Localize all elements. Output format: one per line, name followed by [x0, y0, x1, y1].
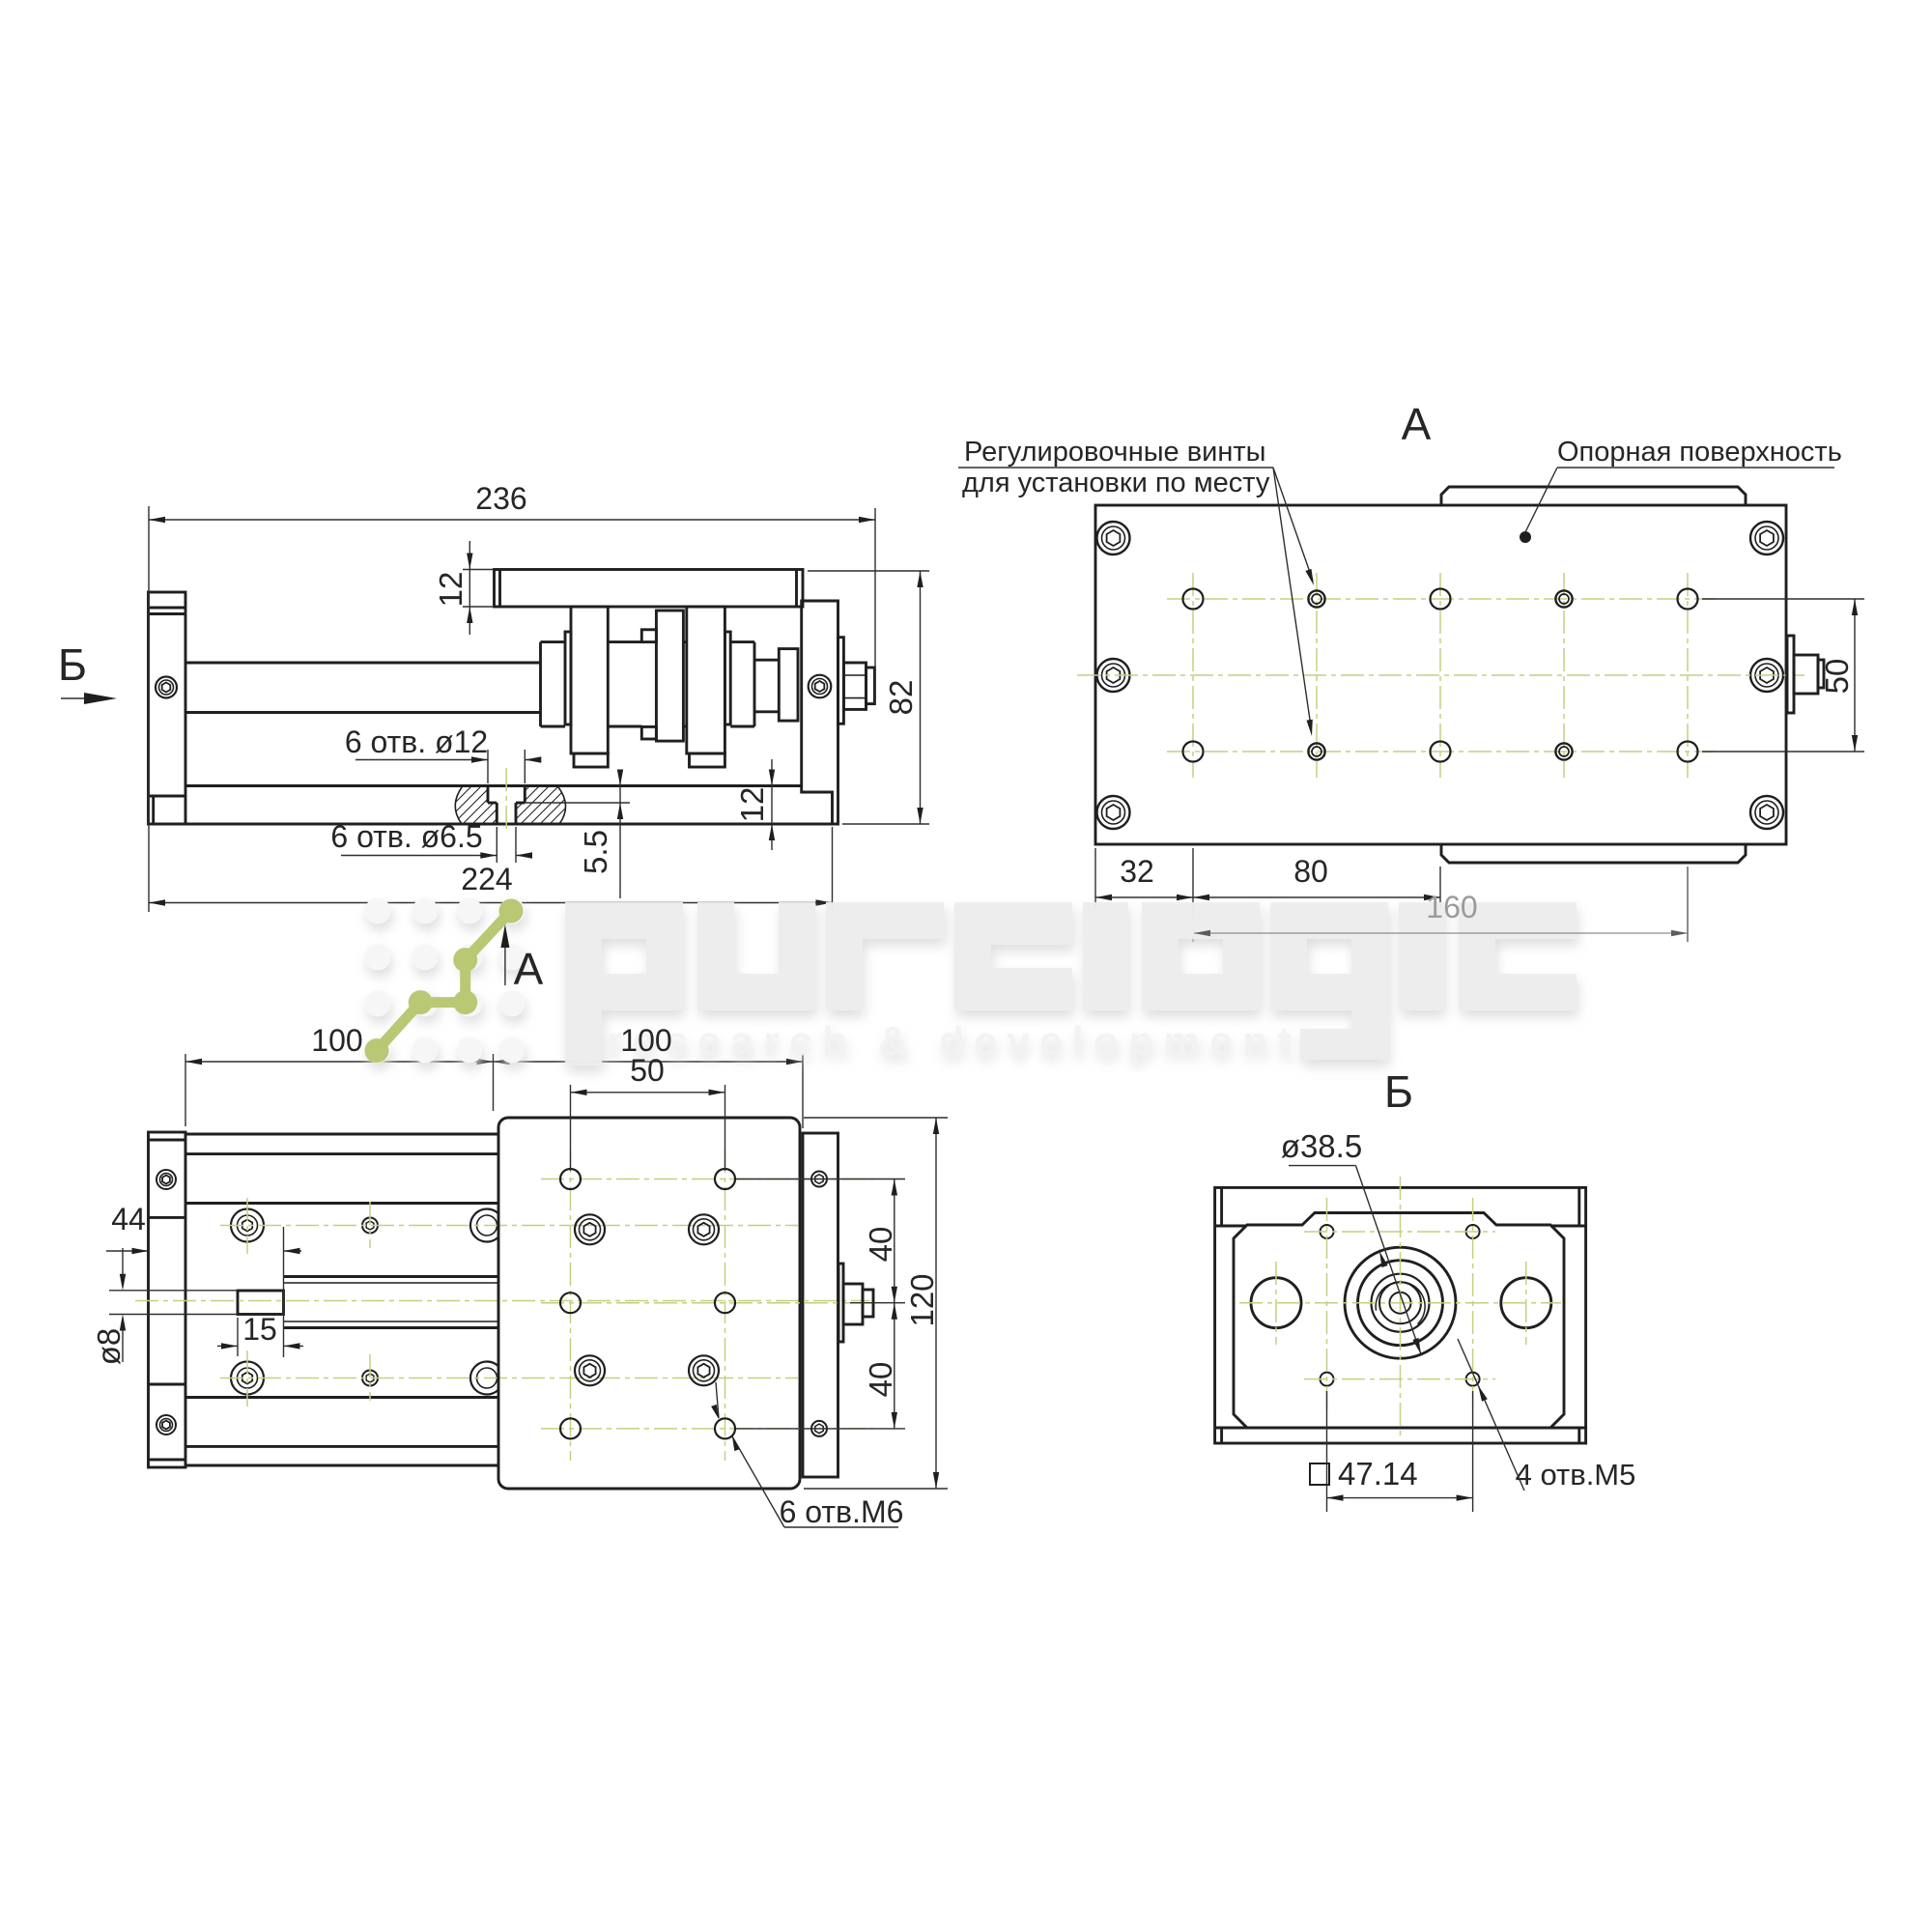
svg-text:Б: Б	[1384, 1066, 1413, 1117]
svg-text:40: 40	[863, 1362, 898, 1398]
svg-text:82: 82	[883, 680, 919, 716]
svg-text:80: 80	[1293, 854, 1328, 889]
svg-text:4 отв.М5: 4 отв.М5	[1516, 1458, 1636, 1492]
svg-text:50: 50	[1819, 659, 1855, 695]
svg-text:для установки по месту: для установки по месту	[962, 468, 1270, 498]
svg-text:160: 160	[1426, 890, 1477, 924]
svg-text:15: 15	[242, 1312, 277, 1347]
svg-text:А: А	[1402, 399, 1432, 449]
svg-text:120: 120	[904, 1273, 940, 1326]
svg-text:6 отв. ø6.5: 6 отв. ø6.5	[330, 819, 482, 854]
svg-text:47.14: 47.14	[1338, 1456, 1418, 1492]
svg-text:100: 100	[311, 1023, 362, 1058]
svg-text:50: 50	[630, 1053, 665, 1088]
svg-text:224: 224	[461, 862, 512, 896]
svg-text:ø8: ø8	[91, 1328, 127, 1366]
svg-text:ø38.5: ø38.5	[1281, 1128, 1362, 1164]
svg-text:А: А	[514, 944, 544, 994]
svg-text:40: 40	[863, 1227, 898, 1263]
svg-text:12: 12	[734, 787, 770, 823]
svg-text:research & development: research & development	[607, 1018, 1301, 1064]
svg-text:32: 32	[1120, 854, 1154, 889]
svg-text:5.5: 5.5	[578, 830, 613, 874]
svg-text:12: 12	[433, 572, 469, 608]
svg-text:6 отв. ø12: 6 отв. ø12	[345, 724, 488, 759]
svg-text:Регулировочные винты: Регулировочные винты	[964, 437, 1266, 468]
svg-text:6 отв.М6: 6 отв.М6	[780, 1494, 904, 1529]
svg-text:44: 44	[111, 1202, 146, 1236]
svg-text:Б: Б	[58, 639, 87, 690]
svg-text:236: 236	[475, 481, 526, 516]
svg-text:Опорная поверхность: Опорная поверхность	[1557, 437, 1842, 468]
